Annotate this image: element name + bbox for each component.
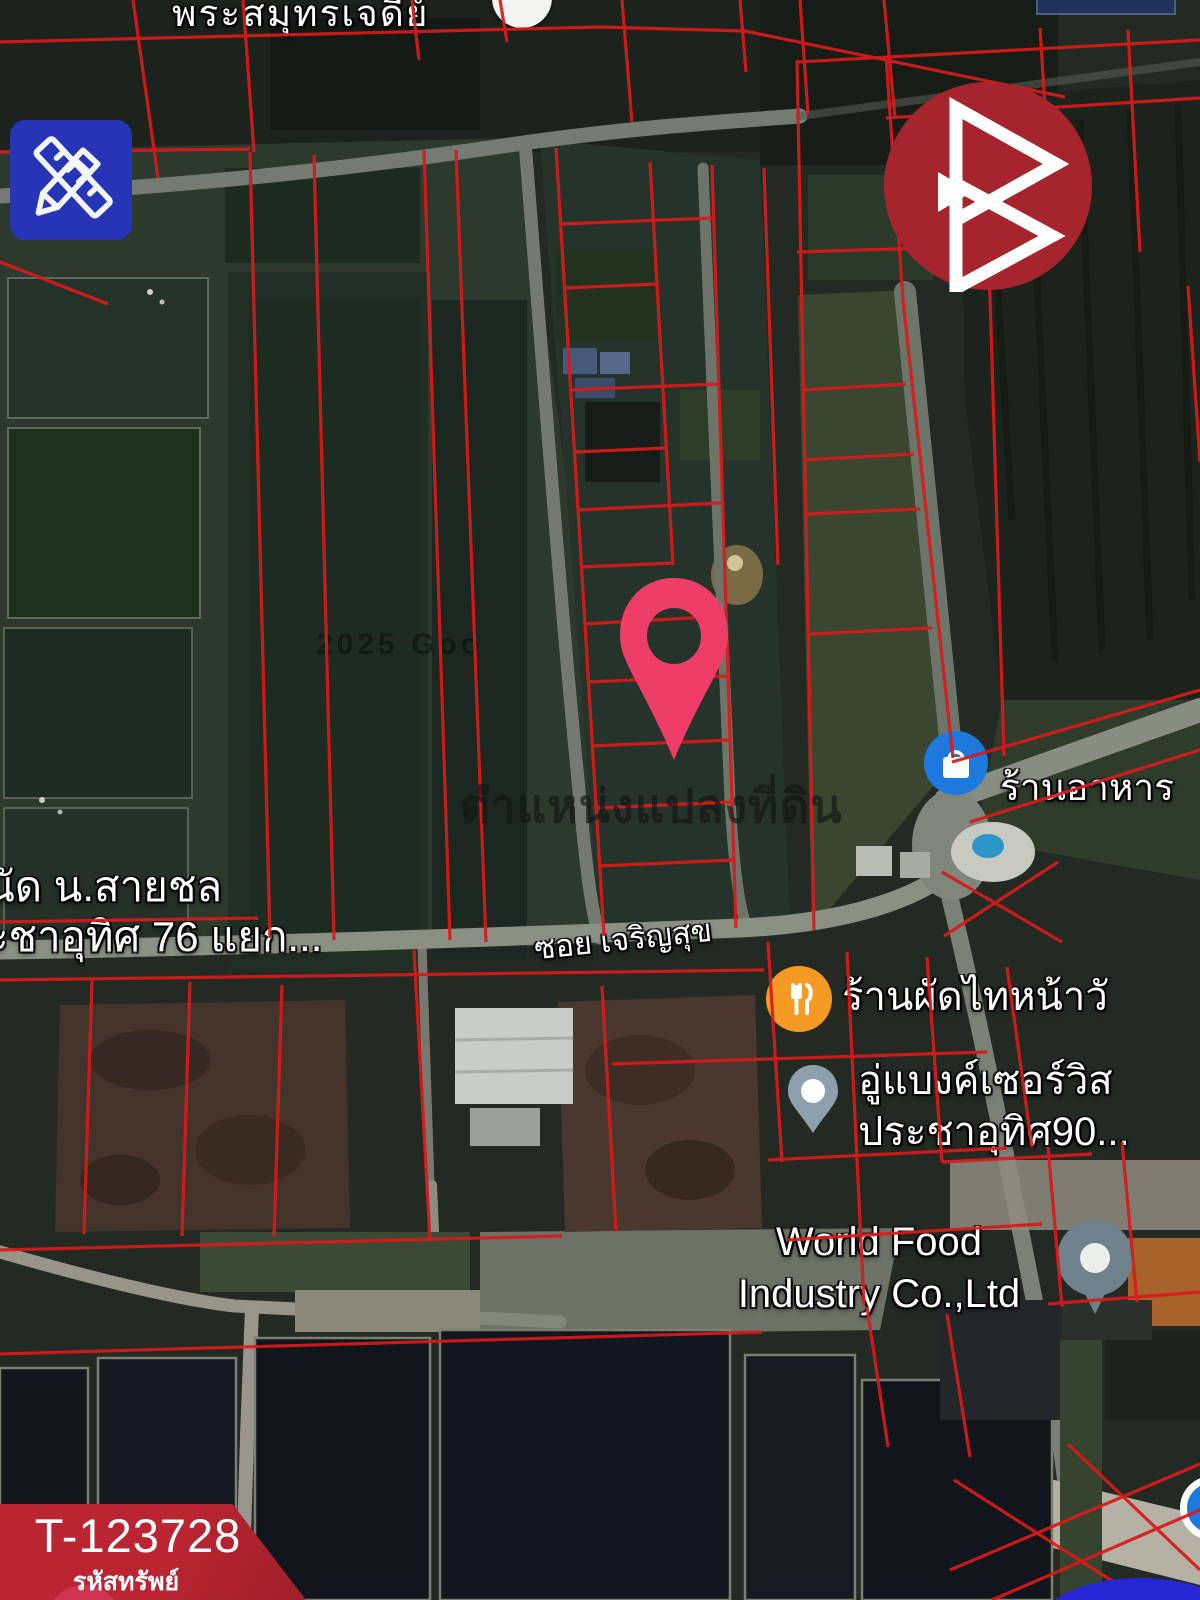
worldfood-line2: Industry Co.,Ltd xyxy=(733,1268,1025,1320)
garage-poi-line2: ประชาอุทิศ90... xyxy=(858,1107,1130,1158)
garage-poi-marker[interactable] xyxy=(782,1062,844,1136)
worldfood-poi-label[interactable]: World Food Industry Co.,Ltd xyxy=(733,1216,1025,1320)
restaurant-poi-marker[interactable] xyxy=(922,729,990,797)
worldfood-line1: World Food xyxy=(733,1216,1025,1268)
garage-poi-label[interactable]: อู่แบงค์เซอร์วิส ประชาอุทิศ90... xyxy=(858,1056,1130,1158)
padthai-poi-label[interactable]: ร้านผัดไทหน้าวั xyxy=(842,964,1108,1028)
restaurant-poi-label[interactable]: ร้านอาหาร xyxy=(1000,758,1174,817)
padthai-poi-marker[interactable] xyxy=(764,964,834,1034)
measure-tool-button[interactable] xyxy=(10,120,132,240)
satellite-map-canvas[interactable]: พระสมุทรเจดีย์ 2025 Goo นัด น.สายชล ะชาอ… xyxy=(0,0,1200,1600)
district-label: พระสมุทรเจดีย์ xyxy=(172,0,429,43)
meeting-note-line1: นัด น.สายชล xyxy=(0,862,322,912)
garage-poi-line1: อู่แบงค์เซอร์วิส xyxy=(858,1056,1130,1107)
meeting-note-line2: ะชาอุทิศ 76 แยก... xyxy=(0,912,322,962)
property-code: T-123728 xyxy=(30,1508,246,1563)
brand-logo xyxy=(880,76,1096,292)
parcel-position-watermark: ตำแหน่งแปลงที่ดิน xyxy=(460,770,843,843)
property-code-caption: รหัสทรัพย์ xyxy=(30,1562,222,1600)
cropped-top-bar xyxy=(1036,0,1176,15)
meeting-note-label: นัด น.สายชล ะชาอุทิศ 76 แยก... xyxy=(0,862,322,961)
property-location-pin[interactable] xyxy=(612,572,736,768)
worldfood-poi-marker[interactable] xyxy=(1052,1218,1138,1316)
map-copyright: 2025 Goo xyxy=(316,628,483,662)
location-pin-icon xyxy=(620,578,728,760)
fork-knife-icon xyxy=(766,966,832,1032)
